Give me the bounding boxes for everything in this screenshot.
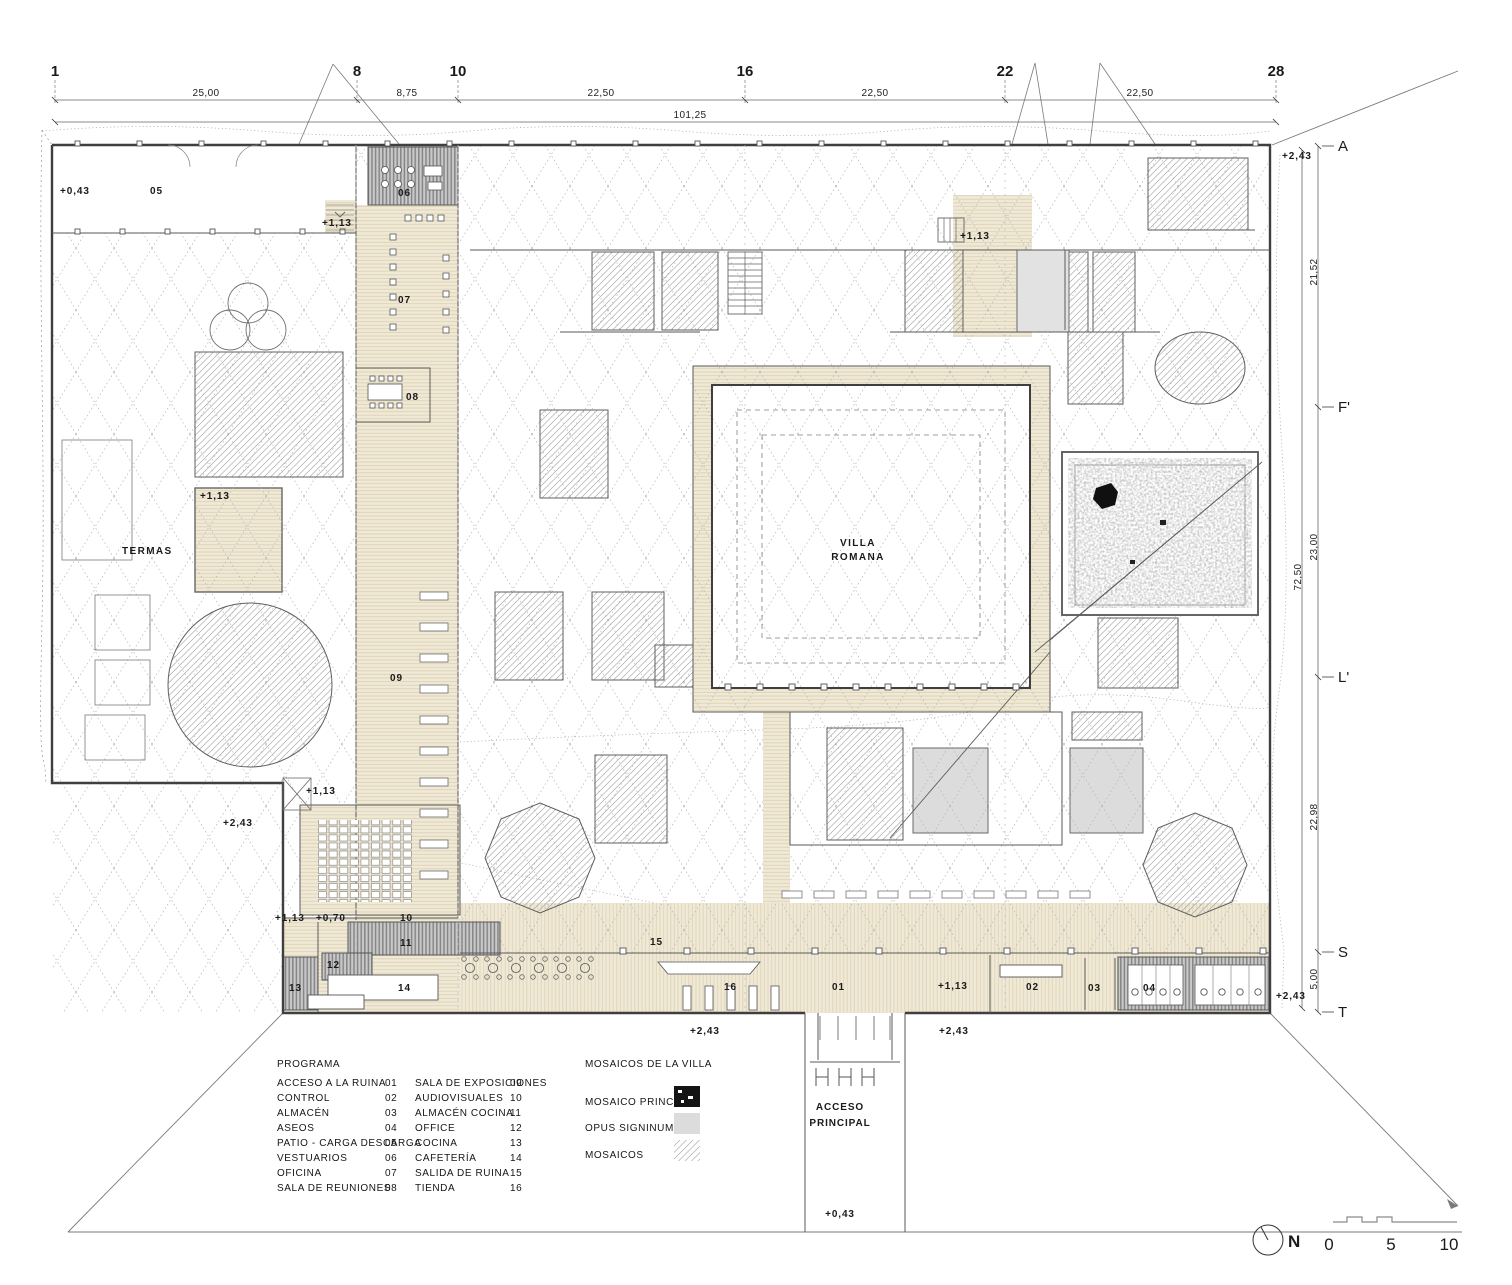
room-04-label: 04 bbox=[1143, 983, 1156, 994]
program-num: 12 bbox=[510, 1123, 522, 1134]
termas-label: TERMAS bbox=[122, 546, 173, 557]
program-num: 05 bbox=[385, 1138, 397, 1149]
program-item: OFICINA bbox=[277, 1168, 322, 1179]
swatch-opus-signinum bbox=[674, 1113, 700, 1134]
north-arrow: N bbox=[1253, 1225, 1300, 1255]
grid-row-A: A bbox=[1338, 138, 1348, 155]
level-113-south: +1,13 bbox=[275, 913, 305, 924]
program-item: AUDIOVISUALES bbox=[415, 1093, 503, 1104]
level-243-west-terrace: +2,43 bbox=[223, 818, 253, 829]
level-113-auditorium: +1,13 bbox=[306, 786, 336, 797]
room-12-label: 12 bbox=[327, 960, 340, 971]
room-08-label: 08 bbox=[406, 392, 419, 403]
scale-0: 0 bbox=[1324, 1235, 1333, 1254]
program-num: 03 bbox=[385, 1108, 397, 1119]
room-01-label: 01 bbox=[832, 982, 845, 993]
north-label: N bbox=[1288, 1232, 1300, 1251]
room-16-label: 16 bbox=[724, 982, 737, 993]
program-item: ACCESO A LA RUINA bbox=[277, 1078, 386, 1089]
program-num: 13 bbox=[510, 1138, 522, 1149]
grid-row-T: T bbox=[1338, 1004, 1347, 1021]
level-070-south: +0,70 bbox=[316, 913, 346, 924]
dim-25-00: 25,00 bbox=[192, 88, 219, 99]
dim-22-50-a: 22,50 bbox=[587, 88, 614, 99]
dim-22-50-c: 22,50 bbox=[1126, 88, 1153, 99]
room-10-label: 10 bbox=[400, 913, 413, 924]
dim-23-00: 23,00 bbox=[1309, 533, 1320, 560]
program-num: 08 bbox=[385, 1183, 397, 1194]
mosaics-legend: MOSAICOS DE LA VILLA MOSAICO PRINCIPAL O… bbox=[585, 1059, 712, 1161]
program-item: SALA DE EXPOSICIONES bbox=[415, 1078, 547, 1089]
room-14-label: 14 bbox=[398, 983, 411, 994]
program-num: 11 bbox=[510, 1108, 522, 1119]
swatch-mosaicos bbox=[674, 1140, 700, 1161]
program-item: SALA DE REUNIONES bbox=[277, 1183, 391, 1194]
room-15-label: 15 bbox=[650, 937, 663, 948]
control-room-counter bbox=[1000, 965, 1062, 977]
room-13-label: 13 bbox=[289, 983, 302, 994]
program-num: 10 bbox=[510, 1093, 522, 1104]
grid-col-8: 8 bbox=[353, 63, 361, 80]
mosaics-legend-title: MOSAICOS DE LA VILLA bbox=[585, 1059, 712, 1070]
grid-col-1: 1 bbox=[51, 63, 59, 80]
program-item: SALIDA DE RUINA bbox=[415, 1168, 510, 1179]
level-113-corridor: +1,13 bbox=[938, 981, 968, 992]
acceso-principal-label-1: ACCESO bbox=[816, 1102, 864, 1113]
program-item: ALMACÉN bbox=[277, 1106, 330, 1119]
dim-22-50-b: 22,50 bbox=[861, 88, 888, 99]
program-num: 07 bbox=[385, 1168, 397, 1179]
level-113-north: +1,13 bbox=[960, 231, 990, 242]
program-legend: PROGRAMA ACCESO A LA RUINA01 CONTROL02 A… bbox=[277, 1059, 547, 1194]
program-num: 14 bbox=[510, 1153, 522, 1164]
grid-col-16: 16 bbox=[737, 63, 754, 80]
termas-raised-platform bbox=[195, 488, 282, 592]
room-11-label: 11 bbox=[400, 938, 412, 949]
scale-5: 5 bbox=[1386, 1235, 1395, 1254]
level-043-plaza: +0,43 bbox=[825, 1209, 855, 1220]
program-item: ASEOS bbox=[277, 1123, 314, 1134]
dim-5-00: 5,00 bbox=[1309, 968, 1320, 989]
room-05-label: 05 bbox=[150, 186, 163, 197]
program-num: 04 bbox=[385, 1123, 397, 1134]
right-grid-labels: A F' L' S T 21,52 23,00 22,98 5,00 72,50… bbox=[1276, 138, 1350, 1021]
level-243-plaza-left: +2,43 bbox=[690, 1026, 720, 1037]
dim-22-98: 22,98 bbox=[1309, 803, 1320, 830]
level-243-bottomright: +2,43 bbox=[1276, 991, 1306, 1002]
room-07-label: 07 bbox=[398, 295, 411, 306]
dim-21-52: 21,52 bbox=[1309, 258, 1320, 285]
program-item: VESTUARIOS bbox=[277, 1153, 347, 1164]
program-item: TIENDA bbox=[415, 1183, 455, 1194]
program-num: 06 bbox=[385, 1153, 397, 1164]
villa-romana-label-2: ROMANA bbox=[831, 552, 884, 563]
mosaics-legend-mosaicos: MOSAICOS bbox=[585, 1150, 644, 1161]
grid-col-28: 28 bbox=[1268, 63, 1285, 80]
auditorium-seating bbox=[318, 820, 413, 902]
program-item: ALMACÉN COCINA bbox=[415, 1106, 513, 1119]
program-item: COCINA bbox=[415, 1138, 458, 1149]
program-title: PROGRAMA bbox=[277, 1059, 340, 1070]
program-num: 09 bbox=[510, 1078, 522, 1089]
level-113-termas: +1,13 bbox=[200, 491, 230, 502]
dim-total-101-25: 101,25 bbox=[674, 110, 707, 121]
dim-8-75: 8,75 bbox=[396, 88, 417, 99]
program-num: 16 bbox=[510, 1183, 522, 1194]
grid-row-L: L' bbox=[1338, 669, 1349, 686]
level-113-ramp: +1,13 bbox=[322, 218, 352, 229]
mosaics-legend-opus: OPUS SIGNINUM bbox=[585, 1123, 674, 1134]
program-num: 15 bbox=[510, 1168, 522, 1179]
grid-row-S: S bbox=[1338, 944, 1348, 961]
level-243-plaza-right: +2,43 bbox=[939, 1026, 969, 1037]
villa-romana-label-1: VILLA bbox=[840, 538, 876, 549]
grid-col-10: 10 bbox=[450, 63, 467, 80]
program-item: PATIO - CARGA DESCARGA bbox=[277, 1138, 422, 1149]
swatch-mosaico-principal bbox=[674, 1086, 700, 1107]
floor-plan-drawing: 1 8 10 16 22 28 25,00 8,75 22,50 22,50 2… bbox=[0, 0, 1512, 1285]
grid-row-F: F' bbox=[1338, 399, 1350, 416]
architectural-site-plan: 1 8 10 16 22 28 25,00 8,75 22,50 22,50 2… bbox=[0, 0, 1512, 1285]
scale-bar: 0 5 10 bbox=[1324, 1217, 1458, 1254]
grid-col-22: 22 bbox=[997, 63, 1014, 80]
acceso-principal-label-2: PRINCIPAL bbox=[809, 1118, 870, 1129]
room-03-label: 03 bbox=[1088, 983, 1101, 994]
program-item: CAFETERÍA bbox=[415, 1151, 477, 1164]
program-num: 02 bbox=[385, 1093, 397, 1104]
program-num: 01 bbox=[385, 1078, 397, 1089]
level-243-topright: +2,43 bbox=[1282, 151, 1312, 162]
room-02-label: 02 bbox=[1026, 982, 1039, 993]
level-043-patio: +0,43 bbox=[60, 186, 90, 197]
scale-10: 10 bbox=[1440, 1235, 1459, 1254]
program-item: OFFICE bbox=[415, 1123, 455, 1134]
room-06-label: 06 bbox=[398, 188, 411, 199]
room-09-label: 09 bbox=[390, 673, 403, 684]
dim-72-50: 72,50 bbox=[1293, 563, 1304, 590]
program-item: CONTROL bbox=[277, 1093, 330, 1104]
